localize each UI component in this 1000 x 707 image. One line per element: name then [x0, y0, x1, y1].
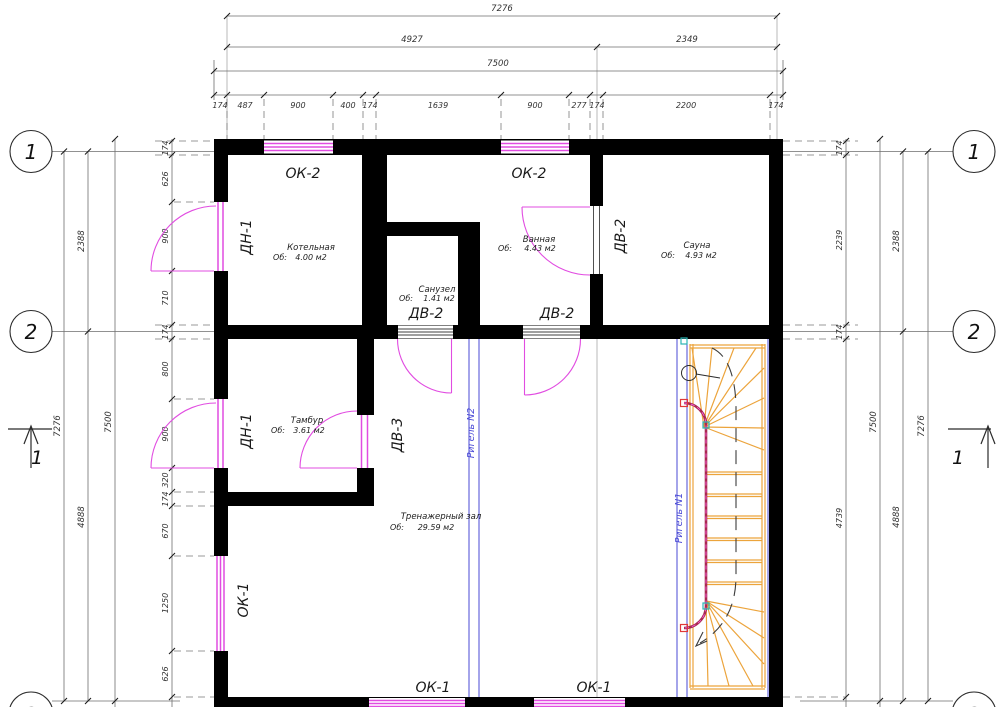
staircase	[681, 338, 766, 689]
wall-boiler-east	[362, 155, 387, 325]
label-ok2-2: ОК-2	[512, 166, 547, 182]
grid-lines	[52, 16, 953, 701]
label-dv2-2: ДВ-2	[539, 306, 575, 322]
dim-seg: 626	[161, 171, 170, 186]
dim-seg: 174	[362, 101, 377, 110]
beam-n2-label: Ригель N2	[466, 408, 477, 459]
dim-seg: 2200	[676, 101, 696, 110]
label-dv2-sauna: ДВ-2	[613, 219, 629, 255]
dim-right-outer: 7500	[869, 411, 879, 433]
room-sauna: Сауна Об: 4.93 м2	[661, 241, 717, 260]
door-swing-dv2-2	[525, 339, 581, 395]
room-name: Котельная	[287, 243, 335, 253]
dim-seg: 800	[161, 361, 170, 376]
door-dn1-top-opening	[214, 202, 228, 271]
axis-number: 2	[968, 320, 981, 344]
dim-seg: 174	[161, 324, 170, 339]
room-area: 1.41 м2	[423, 294, 454, 303]
dim-seg: 277	[571, 101, 587, 110]
dim-seg: 400	[340, 101, 355, 110]
dim-seg: 174	[161, 491, 170, 506]
label-dv3: ДВ-3	[390, 418, 406, 454]
dim-seg: 4739	[835, 508, 844, 528]
axis-number: 1	[968, 140, 981, 164]
room-gym: Тренажерный зал Об: 29.59 м2	[390, 512, 482, 532]
dim-left-outer: 7500	[104, 411, 114, 433]
dimension-labels: 7276 4927 2349 7500 174 487 900 400 174 …	[53, 4, 927, 682]
dim-right-lower: 4888	[892, 506, 902, 528]
room-labels: Котельная Об: 4.00 м2 Санузел Об: 1.41 м…	[271, 235, 717, 532]
axis-number: 2	[25, 320, 38, 344]
label-ok1-bottom-2: ОК-1	[577, 680, 612, 696]
room-prefix: Об:	[498, 244, 512, 253]
dim-seg: 1639	[428, 101, 448, 110]
axis-number: 3	[968, 703, 981, 707]
label-ok1-bottom-1: ОК-1	[416, 680, 451, 696]
section-label: 1	[952, 447, 964, 469]
dashed-projection-lines	[155, 99, 858, 697]
room-tambur: Тамбур Об: 3.61 м2	[271, 416, 325, 435]
floor-plan-canvas: 7276 4927 2349 7500 174 487 900 400 174 …	[0, 0, 1000, 707]
door-swing-dv2-1	[398, 339, 452, 393]
dim-top-right-span: 2349	[676, 35, 698, 45]
dim-right-overall: 7276	[917, 415, 927, 437]
room-area: 4.93 м2	[685, 251, 716, 260]
wall-tambour-south	[214, 492, 374, 506]
dim-seg: 174	[835, 324, 844, 339]
room-area: 3.61 м2	[293, 426, 324, 435]
stair-newel-circle	[682, 366, 697, 381]
dim-seg: 174	[589, 101, 604, 110]
window-ok1-bottom-1	[369, 698, 465, 707]
wall-wc-east	[458, 222, 480, 339]
dim-seg: 670	[161, 523, 170, 538]
room-area: 29.59 м2	[418, 523, 455, 532]
dim-seg: 710	[161, 290, 170, 305]
dim-top-left-span: 4927	[401, 35, 423, 45]
label-ok2-1: ОК-2	[286, 166, 321, 182]
dim-seg: 320	[161, 472, 170, 487]
room-name: Тренажерный зал	[401, 512, 482, 522]
dim-seg: 900	[527, 101, 542, 110]
dim-seg: 900	[161, 426, 170, 441]
dim-seg: 174	[835, 140, 844, 155]
dim-seg: 2239	[835, 230, 844, 250]
wall-outer-bottom	[214, 697, 783, 707]
floor-plan-drawing: 7276 4927 2349 7500 174 487 900 400 174 …	[0, 0, 1000, 707]
room-prefix: Об:	[399, 294, 413, 303]
room-sanuzel: Санузел Об: 1.41 м2	[399, 285, 456, 303]
room-prefix: Об:	[390, 523, 404, 532]
room-kotelnaya: Котельная Об: 4.00 м2	[273, 243, 335, 262]
room-area: 4.00 м2	[295, 253, 326, 262]
door-dv3-opening	[357, 415, 374, 468]
room-name: Тамбур	[291, 416, 323, 426]
dim-left-overall: 7276	[53, 415, 63, 437]
dim-seg: 487	[237, 101, 253, 110]
window-ok1-bottom-2	[534, 698, 625, 707]
door-dv2-sauna-opening	[590, 206, 603, 274]
dim-seg: 626	[161, 666, 170, 681]
dim-left-lower: 4888	[77, 506, 87, 528]
dim-seg: 174	[161, 140, 170, 155]
wall-wc-north	[387, 222, 460, 236]
room-area: 4.43 м2	[524, 244, 555, 253]
dim-seg: 174	[768, 101, 783, 110]
dim-seg: 1250	[161, 593, 170, 613]
room-prefix: Об:	[273, 253, 287, 262]
wall-outer-right	[769, 139, 783, 707]
label-dv2-1: ДВ-2	[408, 306, 444, 322]
label-ok1-left: ОК-1	[236, 583, 252, 618]
room-vannaya: Ванная Об: 4.43 м2	[498, 235, 556, 253]
section-marker-right: 1	[948, 426, 995, 469]
room-prefix: Об:	[661, 251, 675, 260]
axis-number: 1	[25, 140, 38, 164]
room-prefix: Об:	[271, 426, 285, 435]
beam-n1-label: Ригель N1	[674, 493, 685, 544]
dim-top-overall: 7276	[491, 4, 513, 14]
door-dn1-bottom-opening	[214, 399, 228, 468]
dim-left-upper: 2388	[77, 230, 87, 252]
dim-seg: 900	[290, 101, 305, 110]
room-name: Сауна	[684, 241, 711, 251]
label-dn1-1: ДН-1	[239, 219, 255, 255]
dim-top-outer: 7500	[487, 59, 509, 69]
dim-right-upper: 2388	[892, 230, 902, 252]
axis-number: 3	[25, 703, 38, 707]
axis-markers: 1 1 2 2 3 3 1 1	[8, 131, 996, 707]
section-marker-left: 1	[8, 426, 52, 469]
dimension-lines	[61, 13, 931, 707]
dim-seg: 174	[212, 101, 227, 110]
section-label: 1	[31, 447, 43, 469]
wall-axis2	[214, 325, 783, 339]
label-dn1-2: ДН-1	[239, 413, 255, 449]
